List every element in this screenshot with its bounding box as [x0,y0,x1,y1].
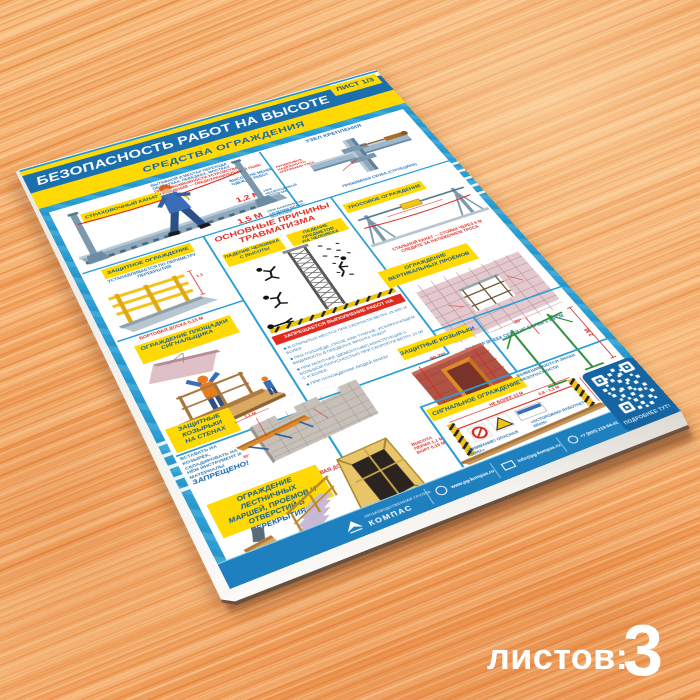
svg-text:1,1: 1,1 [195,273,204,278]
svg-text:1,1 М: 1,1 М [243,411,257,419]
svg-text:2 М: 2 М [583,327,597,337]
svg-text:30°: 30° [512,317,524,324]
svg-text:30°: 30° [242,452,252,459]
